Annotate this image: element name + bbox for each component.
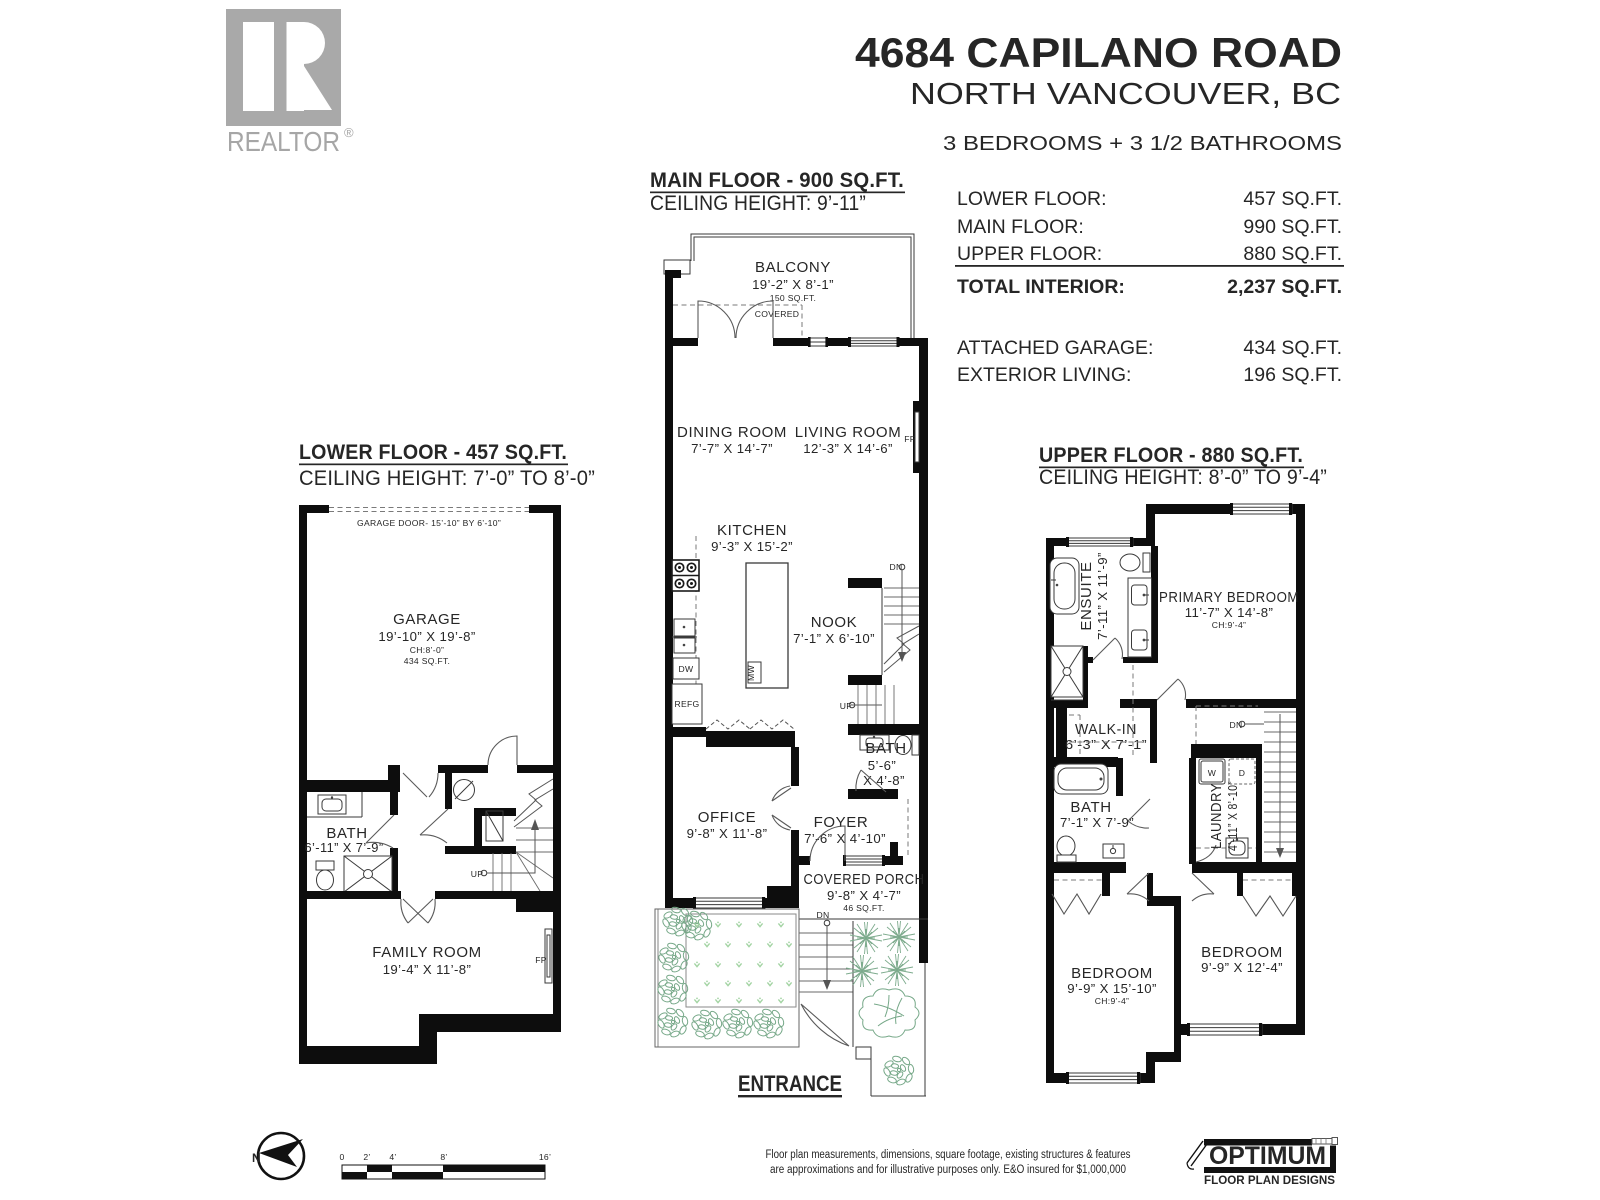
svg-text:NOOK: NOOK: [811, 614, 858, 631]
svg-text:ENTRANCE: ENTRANCE: [738, 1071, 842, 1096]
svg-text:DW: DW: [679, 664, 695, 674]
svg-text:46 SQ.FT.: 46 SQ.FT.: [843, 903, 884, 913]
svg-text:Floor plan measurements, dimen: Floor plan measurements, dimensions, squ…: [766, 1149, 1131, 1161]
svg-text:D: D: [1239, 768, 1246, 778]
svg-text:GARAGE DOOR- 15’-10” BY 6’-10”: GARAGE DOOR- 15’-10” BY 6’-10”: [357, 518, 501, 528]
svg-text:FP: FP: [535, 955, 547, 965]
svg-text:11’-7” X 14’-8”: 11’-7” X 14’-8”: [1185, 605, 1274, 620]
svg-text:CH:8’-0”: CH:8’-0”: [410, 645, 444, 655]
svg-text:are approximations and for ill: are approximations and for illustrative …: [770, 1164, 1126, 1176]
svg-text:KITCHEN: KITCHEN: [717, 522, 787, 539]
svg-text:MAIN FLOOR - 900 SQ.FT.: MAIN FLOOR - 900 SQ.FT.: [650, 169, 904, 192]
svg-text:NORTH VANCOUVER, BC: NORTH VANCOUVER, BC: [910, 76, 1341, 111]
svg-text:W: W: [1208, 768, 1217, 778]
svg-text:4684 CAPILANO ROAD: 4684 CAPILANO ROAD: [855, 29, 1342, 76]
svg-text:PRIMARY BEDROOM: PRIMARY BEDROOM: [1159, 589, 1299, 606]
svg-text:LIVING ROOM: LIVING ROOM: [795, 424, 902, 441]
svg-text:880 SQ.FT.: 880 SQ.FT.: [1243, 243, 1342, 265]
svg-text:CEILING HEIGHT: 7’-0” TO 8’-0”: CEILING HEIGHT: 7’-0” TO 8’-0”: [299, 467, 595, 490]
svg-text:16’: 16’: [539, 1152, 551, 1162]
svg-text:BATH: BATH: [865, 740, 906, 757]
svg-text:0: 0: [339, 1152, 344, 1162]
svg-text:12’-3” X 14’-6”: 12’-3” X 14’-6”: [803, 441, 893, 456]
svg-text:LOWER FLOOR:: LOWER FLOOR:: [957, 188, 1107, 210]
svg-text:3 BEDROOMS + 3 1/2 BATHROOMS: 3 BEDROOMS + 3 1/2 BATHROOMS: [943, 133, 1342, 155]
svg-text:BALCONY: BALCONY: [755, 259, 831, 276]
svg-text:196 SQ.FT.: 196 SQ.FT.: [1243, 364, 1342, 386]
svg-text:990 SQ.FT.: 990 SQ.FT.: [1243, 216, 1342, 238]
svg-text:2,237 SQ.FT.: 2,237 SQ.FT.: [1227, 276, 1342, 298]
svg-text:19’-10” X 19’-8”: 19’-10” X 19’-8”: [378, 629, 475, 644]
svg-text:9’-8” X 4’-7”: 9’-8” X 4’-7”: [827, 888, 901, 903]
svg-text:EXTERIOR LIVING:: EXTERIOR LIVING:: [957, 364, 1131, 386]
svg-text:19’-4” X 11’-8”: 19’-4” X 11’-8”: [383, 962, 472, 977]
svg-text:9’-9” X 12’-4”: 9’-9” X 12’-4”: [1201, 960, 1283, 975]
svg-text:MAIN FLOOR:: MAIN FLOOR:: [957, 216, 1084, 238]
svg-text:®: ®: [344, 125, 354, 140]
svg-text:6’-3” X 7’-1”: 6’-3” X 7’-1”: [1065, 737, 1147, 752]
svg-text:ENSUITE: ENSUITE: [1078, 561, 1095, 630]
svg-text:8’: 8’: [440, 1152, 447, 1162]
svg-text:CEILING HEIGHT: 9’-11”: CEILING HEIGHT: 9’-11”: [650, 192, 866, 215]
svg-text:150 SQ.FT.: 150 SQ.FT.: [770, 293, 816, 303]
svg-text:CEILING HEIGHT: 8’-0” TO 9’-4”: CEILING HEIGHT: 8’-0” TO 9’-4”: [1039, 466, 1327, 489]
svg-text:MW: MW: [746, 664, 756, 680]
svg-text:TOTAL INTERIOR:: TOTAL INTERIOR:: [957, 276, 1125, 298]
svg-text:ATTACHED GARAGE:: ATTACHED GARAGE:: [957, 337, 1153, 359]
svg-text:BEDROOM: BEDROOM: [1071, 965, 1153, 982]
svg-text:BEDROOM: BEDROOM: [1201, 944, 1283, 961]
svg-text:DN: DN: [889, 562, 902, 572]
svg-text:19’-2” X 8’-1”: 19’-2” X 8’-1”: [752, 277, 834, 292]
svg-text:457 SQ.FT.: 457 SQ.FT.: [1243, 188, 1342, 210]
svg-text:CH:9’-4”: CH:9’-4”: [1095, 996, 1129, 1006]
svg-text:7’-11” X 11’-9”: 7’-11” X 11’-9”: [1095, 552, 1110, 640]
svg-text:CH:9’-4”: CH:9’-4”: [1212, 620, 1246, 630]
svg-text:N: N: [252, 1151, 261, 1165]
svg-text:LOWER FLOOR - 457 SQ.FT.: LOWER FLOOR - 457 SQ.FT.: [299, 441, 567, 464]
svg-text:OPTIMUM: OPTIMUM: [1209, 1142, 1326, 1170]
svg-text:REALTOR: REALTOR: [227, 126, 340, 157]
svg-text:DN: DN: [816, 910, 829, 920]
svg-text:LAUNDRY: LAUNDRY: [1208, 783, 1225, 849]
svg-text:4’-11” X 8’-10”: 4’-11” X 8’-10”: [1225, 781, 1240, 851]
svg-text:434 SQ.FT.: 434 SQ.FT.: [404, 656, 450, 666]
svg-text:BATH: BATH: [1070, 799, 1111, 816]
svg-text:GARAGE: GARAGE: [393, 611, 461, 628]
svg-text:COVERED: COVERED: [755, 309, 800, 319]
svg-text:7’-1” X 6’-10”: 7’-1” X 6’-10”: [793, 631, 875, 646]
svg-text:REFG: REFG: [674, 699, 699, 709]
svg-text:2’: 2’: [363, 1152, 370, 1162]
svg-text:9’-9” X 15’-10”: 9’-9” X 15’-10”: [1067, 981, 1157, 996]
svg-text:9’-3” X 15’-2”: 9’-3” X 15’-2”: [711, 539, 793, 554]
svg-text:FOYER: FOYER: [814, 814, 869, 831]
svg-text:9’-8” X 11’-8”: 9’-8” X 11’-8”: [687, 826, 768, 841]
svg-text:X 4’-8”: X 4’-8”: [863, 773, 905, 788]
svg-text:COVERED PORCH: COVERED PORCH: [804, 871, 925, 888]
svg-text:7’-1” X 7’-9”: 7’-1” X 7’-9”: [1060, 815, 1134, 830]
svg-text:FLOOR PLAN DESIGNS: FLOOR PLAN DESIGNS: [1204, 1175, 1335, 1187]
svg-text:UPPER FLOOR:: UPPER FLOOR:: [957, 243, 1102, 265]
svg-text:434 SQ.FT.: 434 SQ.FT.: [1243, 337, 1342, 359]
svg-text:OFFICE: OFFICE: [698, 809, 757, 826]
svg-text:DINING ROOM: DINING ROOM: [677, 424, 787, 441]
svg-text:FP: FP: [904, 434, 916, 444]
svg-text:4’: 4’: [389, 1152, 396, 1162]
svg-text:FAMILY ROOM: FAMILY ROOM: [372, 944, 481, 961]
svg-text:WALK-IN: WALK-IN: [1075, 721, 1137, 738]
svg-text:UPPER FLOOR - 880 SQ.FT.: UPPER FLOOR - 880 SQ.FT.: [1039, 444, 1303, 467]
svg-text:5’-6”: 5’-6”: [868, 758, 896, 773]
svg-text:7’-7” X 14’-7”: 7’-7” X 14’-7”: [691, 441, 773, 456]
